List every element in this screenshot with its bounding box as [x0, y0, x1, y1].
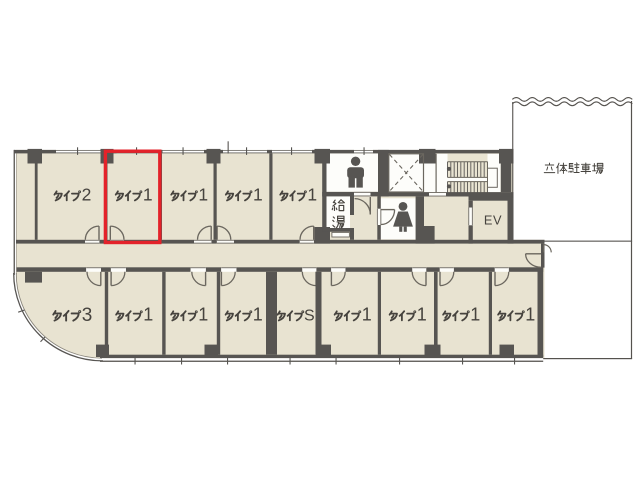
svg-text:2: 2 [82, 185, 92, 205]
svg-text:3: 3 [82, 305, 93, 326]
svg-text:1: 1 [525, 305, 535, 325]
svg-text:1: 1 [143, 305, 153, 325]
svg-text:1: 1 [198, 185, 208, 205]
svg-text:EV: EV [484, 212, 502, 227]
svg-text:1: 1 [198, 305, 208, 325]
svg-text:1: 1 [362, 305, 372, 325]
svg-text:1: 1 [417, 305, 427, 325]
svg-text:1: 1 [307, 185, 317, 205]
svg-text:1: 1 [253, 185, 263, 205]
svg-text:1: 1 [143, 185, 153, 205]
svg-text:1: 1 [253, 305, 263, 325]
svg-text:1: 1 [470, 305, 480, 325]
svg-text:S: S [304, 308, 315, 325]
